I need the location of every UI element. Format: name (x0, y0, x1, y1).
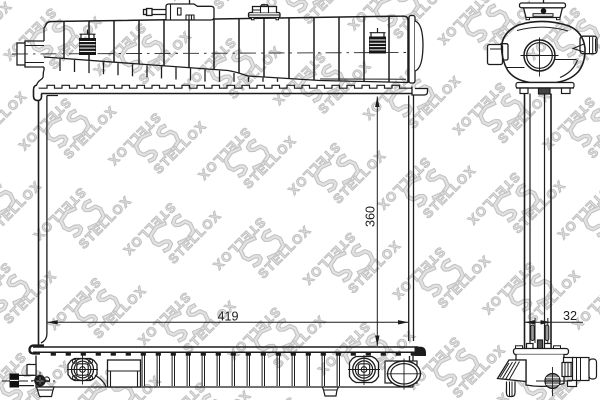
svg-text:32: 32 (563, 309, 577, 323)
svg-text:419: 419 (217, 309, 238, 323)
svg-text:360: 360 (363, 206, 377, 227)
